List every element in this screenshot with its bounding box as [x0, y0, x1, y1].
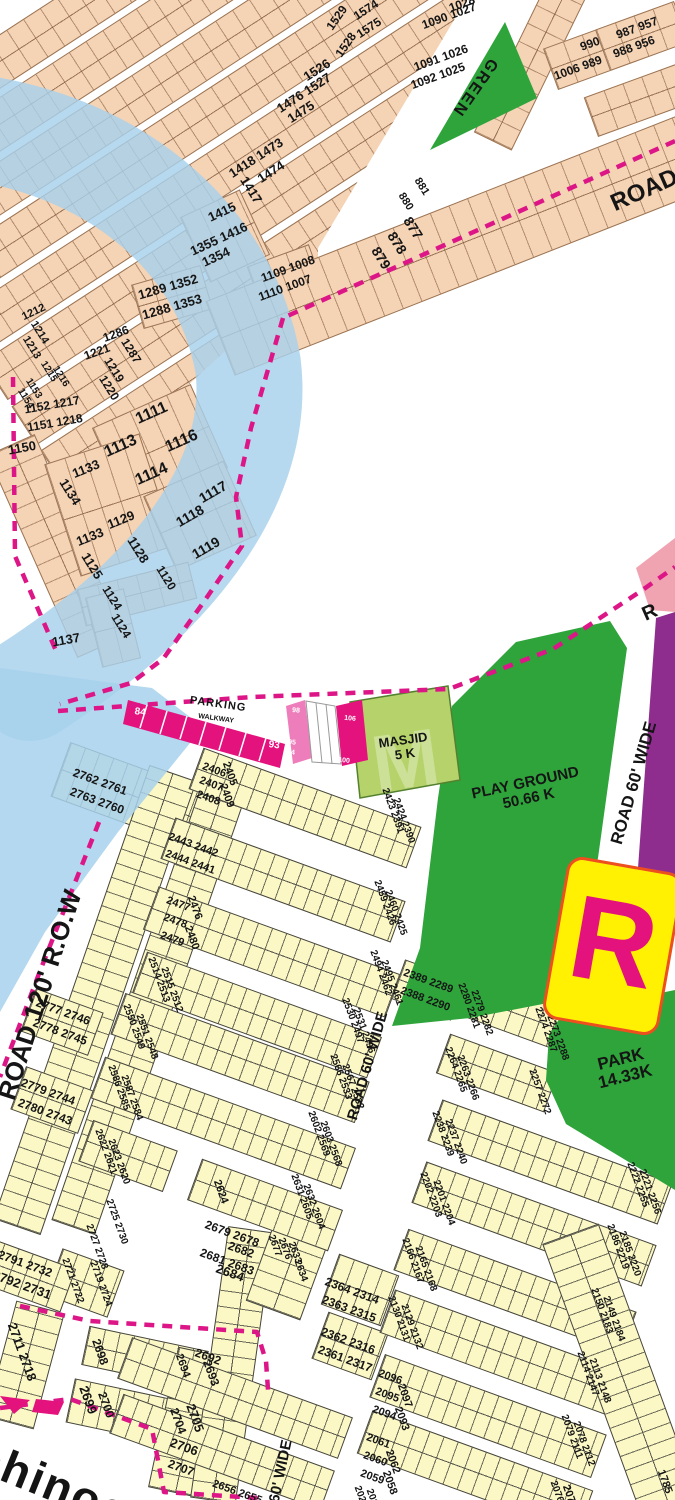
- sector-marker-r: R: [541, 855, 675, 1038]
- plot-block: [595, 1, 675, 71]
- commercial-plot-label: 106: [344, 715, 356, 724]
- commercial-plot-label: 98: [292, 707, 300, 715]
- plot-label: 2027: [363, 1488, 380, 1500]
- park-label: PARK 14.33K: [592, 1044, 654, 1092]
- plot-map: M: [0, 0, 675, 1500]
- road-label: ROAD 60' WIDE: [608, 720, 660, 847]
- commercial-plot-label: 100: [338, 757, 350, 766]
- sector-marker-letter: R: [560, 868, 668, 1017]
- area-name-text: ohinoc: [0, 1428, 137, 1500]
- masjid-label: MASJID 5 K: [378, 730, 430, 764]
- commercial-plot-label: 93: [268, 740, 280, 752]
- commercial-plot-label: 95: [288, 739, 296, 747]
- plot-label: 880: [395, 191, 415, 213]
- plot-label: 2725 2730: [103, 1198, 129, 1246]
- parking-label: PARKING: [189, 695, 247, 714]
- commercial-plot-label: 94: [287, 749, 295, 757]
- road-label: R: [639, 600, 661, 625]
- commercial-plot-label: 84: [134, 707, 146, 719]
- plot-label: 881: [411, 176, 431, 198]
- pink-plot: [636, 538, 675, 612]
- walkway-label: WALKWAY: [198, 713, 235, 725]
- playground-label: PLAY GROUND 50.66 K: [470, 764, 583, 818]
- green-sliver: [434, 838, 452, 908]
